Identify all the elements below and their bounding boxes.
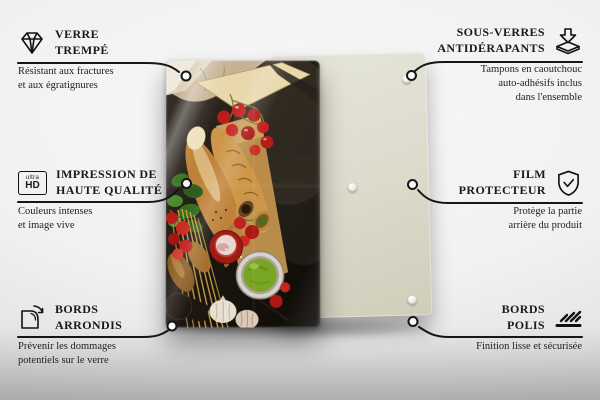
feature-title: BORDS POLIS (502, 302, 545, 333)
feature-impression: ultra HD IMPRESSION DE HAUTE QUALITÉ Cou… (18, 167, 213, 233)
feature-title: FILM PROTECTEUR (459, 167, 546, 198)
pad-arrow-icon (554, 27, 582, 55)
feature-description: Tampons en caoutchouc auto-adhésifs incl… (387, 63, 582, 105)
rounded-corner-icon (18, 304, 46, 331)
feature-title: SOUS-VERRES ANTIDÉRAPANTS (437, 25, 545, 56)
feature-description: Prévenir les dommages potentiels sur le … (18, 340, 213, 368)
feature-verre-trempe: VERRE TREMPÉ Résistant aux fractures et … (18, 27, 213, 93)
feature-sous-verres: SOUS-VERRES ANTIDÉRAPANTS Tampons en cao… (387, 25, 582, 105)
feature-description: Résistant aux fractures et aux égratignu… (18, 65, 213, 93)
feature-description: Couleurs intenses et image vive (18, 205, 213, 233)
product-infographic: VERRE TREMPÉ Résistant aux fractures et … (0, 0, 600, 400)
rubber-pad (348, 183, 357, 192)
feature-film-protecteur: FILM PROTECTEUR Protège la partie arrièr… (387, 167, 582, 233)
ultra-hd-icon: ultra HD (18, 171, 47, 195)
feature-title: IMPRESSION DE HAUTE QUALITÉ (56, 167, 162, 198)
feature-description: Finition lisse et sécurisée (387, 340, 582, 354)
diamond-icon (18, 30, 46, 56)
feature-title: BORDS ARRONDIS (55, 302, 122, 333)
feature-bords-arrondis: BORDS ARRONDIS Prévenir les dommages pot… (18, 302, 213, 368)
polished-edge-icon (554, 304, 582, 331)
feature-title: VERRE TREMPÉ (55, 27, 109, 58)
feature-bords-polis: BORDS POLIS Finition lisse et sécurisée (387, 302, 582, 354)
shield-check-icon (555, 169, 582, 197)
feature-description: Protège la partie arrière du produit (387, 205, 582, 233)
